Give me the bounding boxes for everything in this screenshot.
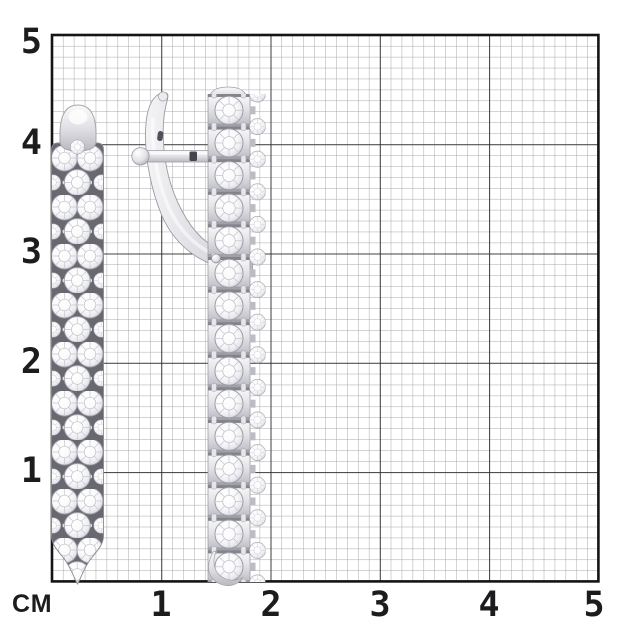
y-axis-label-2: 2 [0, 345, 42, 380]
measurement-photo-scene: 5 4 3 2 1 СМ 1 2 3 4 5 [0, 0, 640, 640]
y-axis-label-4: 4 [0, 126, 42, 161]
x-axis-label-2: 2 [249, 588, 293, 623]
x-axis-label-5: 5 [572, 588, 616, 623]
y-axis-label-1: 1 [0, 454, 42, 489]
post-end-ball [132, 148, 149, 165]
x-axis-label-4: 4 [467, 588, 511, 623]
diamond-earring-front-view [52, 105, 104, 588]
earrings-image [0, 0, 640, 640]
x-axis-label-3: 3 [358, 588, 402, 623]
x-axis-label-1: 1 [139, 588, 183, 623]
post-hinge-notch [190, 152, 198, 162]
y-axis-label-5: 5 [0, 25, 42, 60]
stone-column [208, 94, 266, 582]
lever-rivet [212, 254, 221, 263]
unit-label-cm: СМ [12, 592, 64, 617]
y-axis-label-3: 3 [0, 235, 42, 270]
diamond-earring-side-view [132, 87, 266, 586]
